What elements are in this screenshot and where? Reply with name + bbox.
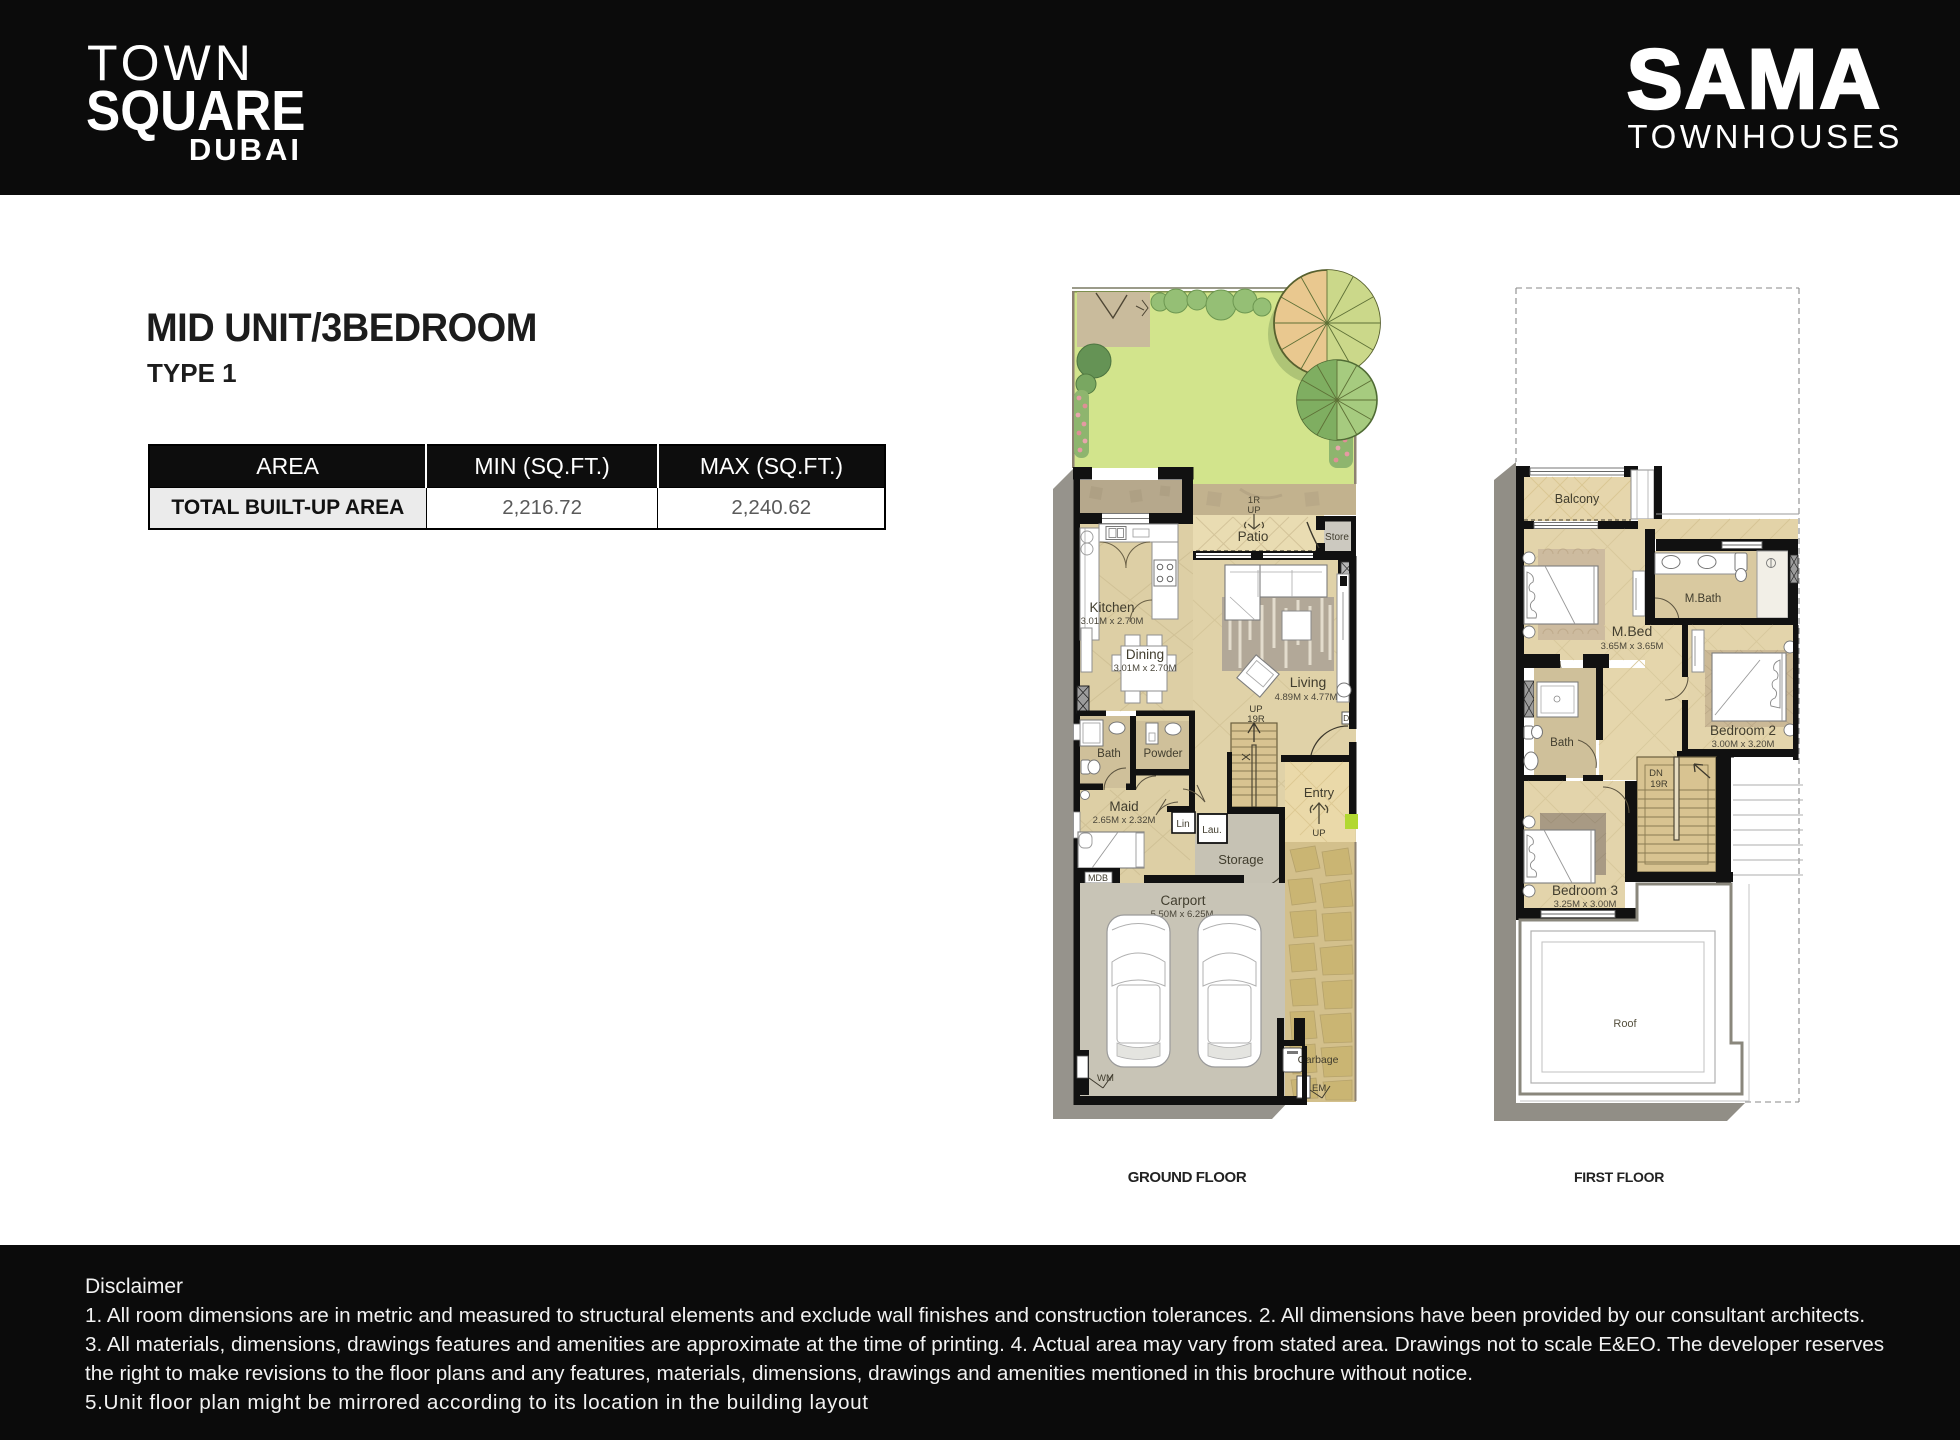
svg-text:3.01M x 2.70M: 3.01M x 2.70M <box>1081 616 1144 627</box>
svg-text:Bedroom 3: Bedroom 3 <box>1552 883 1618 898</box>
svg-text:Bath: Bath <box>1097 748 1121 760</box>
svg-text:Maid: Maid <box>1109 799 1138 814</box>
svg-text:2.65M x 2.32M: 2.65M x 2.32M <box>1093 815 1156 826</box>
svg-text:Bedroom 2: Bedroom 2 <box>1710 723 1776 738</box>
svg-text:DN: DN <box>1649 768 1663 779</box>
svg-text:M.Bath: M.Bath <box>1685 593 1721 605</box>
svg-text:Living: Living <box>1290 674 1327 690</box>
svg-text:Entry: Entry <box>1304 785 1335 800</box>
svg-text:19R: 19R <box>1650 779 1668 790</box>
svg-text:MDB: MDB <box>1088 873 1108 883</box>
svg-text:19R: 19R <box>1247 714 1265 725</box>
svg-text:Patio: Patio <box>1238 529 1269 544</box>
svg-text:Lau.: Lau. <box>1202 825 1221 836</box>
svg-text:3.65M x 3.65M: 3.65M x 3.65M <box>1601 641 1664 652</box>
svg-text:Storage: Storage <box>1218 852 1264 867</box>
svg-text:Kitchen: Kitchen <box>1089 600 1134 615</box>
svg-text:Carport: Carport <box>1160 893 1205 908</box>
svg-text:4.89M x 4.77M: 4.89M x 4.77M <box>1275 692 1338 703</box>
svg-text:Balcony: Balcony <box>1555 492 1600 506</box>
svg-text:M.Bed: M.Bed <box>1612 623 1652 639</box>
svg-text:Roof: Roof <box>1613 1018 1637 1030</box>
svg-text:3.01M x 2.70M: 3.01M x 2.70M <box>1114 663 1177 674</box>
svg-text:3.00M x 3.20M: 3.00M x 3.20M <box>1712 739 1775 750</box>
svg-text:Bath: Bath <box>1550 737 1574 749</box>
svg-text:Store: Store <box>1325 532 1349 543</box>
svg-text:Powder: Powder <box>1144 748 1183 760</box>
svg-text:UP: UP <box>1312 828 1325 839</box>
svg-text:WM: WM <box>1097 1073 1114 1084</box>
svg-text:Dining: Dining <box>1126 647 1164 662</box>
svg-text:Lin: Lin <box>1176 819 1189 830</box>
